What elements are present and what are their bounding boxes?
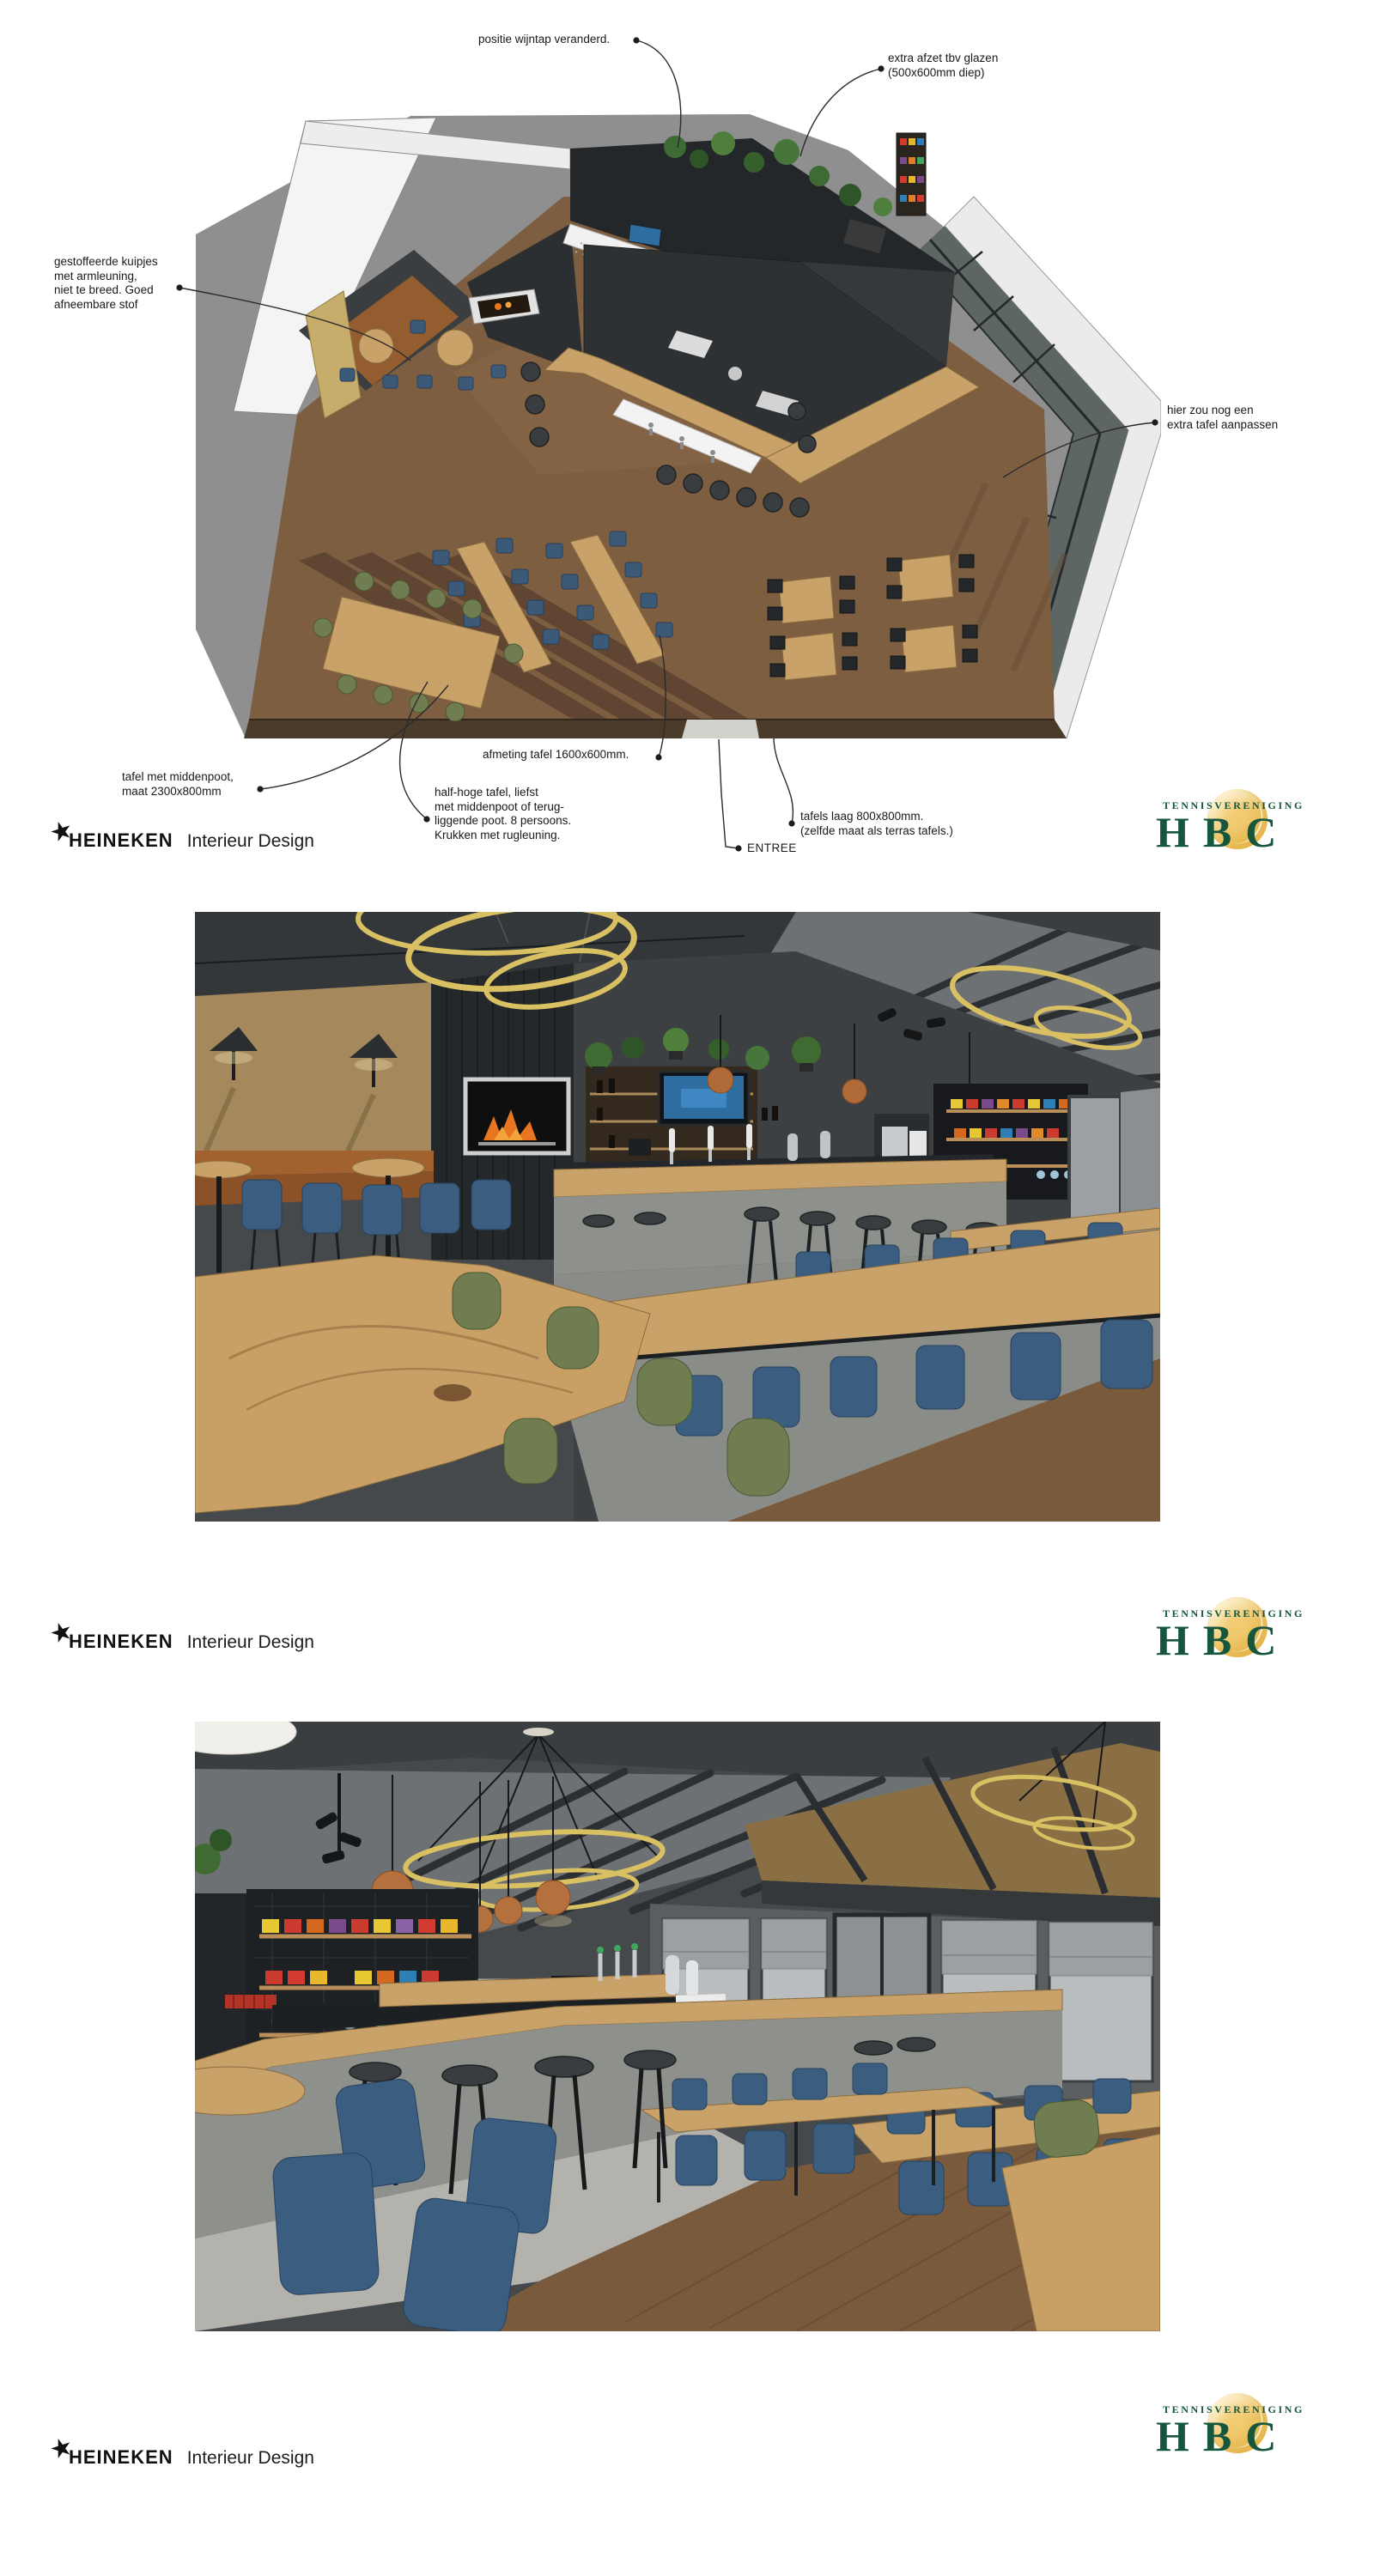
annotation-afmeting: afmeting tafel 1600x600mm.	[483, 748, 629, 762]
snack-rack	[897, 133, 926, 216]
heineken-logo: ★HEINEKENInterieur Design	[52, 1631, 314, 1667]
heineken-suffix: Interieur Design	[187, 2448, 314, 2468]
annotation-extra-tafel: hier zou nog een extra tafel aanpassen	[1167, 404, 1278, 432]
hbc-logo: TENNISVERENIGING HBC	[1152, 1607, 1304, 1662]
annotation-afzet: extra afzet tbv glazen (500x600mm diep)	[888, 52, 998, 80]
floorplan-render	[196, 114, 1161, 738]
heineken-suffix: Interieur Design	[187, 831, 314, 851]
entrance-opening	[682, 720, 759, 738]
heineken-logo: ★HEINEKENInterieur Design	[52, 829, 314, 866]
hbc-logo: TENNISVERENIGING HBC	[1152, 2403, 1304, 2458]
heineken-suffix: Interieur Design	[187, 1632, 314, 1652]
annotation-half-hoge: half-hoge tafel, liefst met middenpoot o…	[435, 786, 571, 843]
annotation-middenpoot: tafel met middenpoot, maat 2300x800mm	[122, 770, 234, 799]
heineken-wordmark: HEINEKEN	[69, 829, 173, 851]
glass-door	[1069, 1097, 1121, 1225]
plaster-wall	[195, 982, 431, 1170]
interior-render-room-view	[195, 1722, 1160, 2331]
heineken-wordmark: HEINEKEN	[69, 1631, 173, 1652]
annotation-kuipjes: gestoffeerde kuipjes met armleuning, nie…	[54, 255, 158, 313]
annotation-entree: ENTREE	[747, 841, 797, 856]
hbc-wordmark: HBC	[1152, 812, 1304, 854]
green-chair	[1032, 2098, 1101, 2159]
annotation-wijntap: positie wijntap veranderd.	[478, 33, 610, 47]
hbc-wordmark: HBC	[1152, 2416, 1304, 2458]
interior-render-bar-view	[195, 912, 1160, 1522]
heineken-logo: ★HEINEKENInterieur Design	[52, 2446, 314, 2482]
heineken-wordmark: HEINEKEN	[69, 2446, 173, 2468]
hbc-logo: TENNISVERENIGING HBC	[1152, 799, 1304, 854]
pos-terminal	[629, 1139, 651, 1156]
design-board-page: positie wijntap veranderd. extra afzet t…	[0, 0, 1374, 2576]
hbc-wordmark: HBC	[1152, 1620, 1304, 1662]
annotation-tafels-laag: tafels laag 800x800mm. (zelfde maat als …	[800, 810, 953, 838]
